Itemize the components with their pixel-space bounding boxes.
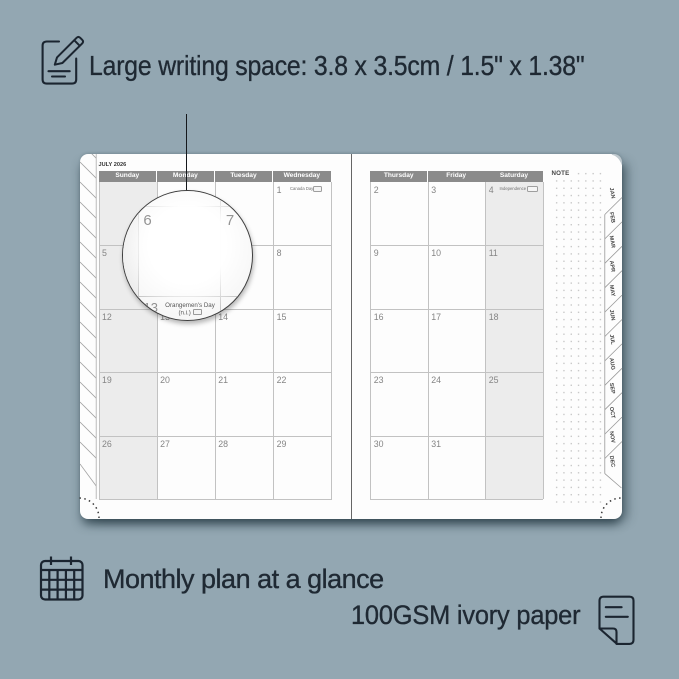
- svg-text:MAR: MAR: [608, 235, 616, 248]
- svg-text:JUN: JUN: [608, 309, 616, 321]
- svg-text:JUL: JUL: [608, 334, 616, 346]
- svg-text:DEC: DEC: [608, 455, 616, 468]
- svg-text:OCT: OCT: [608, 407, 616, 420]
- svg-text:NOV: NOV: [608, 431, 616, 444]
- svg-text:MAY: MAY: [608, 284, 616, 297]
- svg-text:JAN: JAN: [608, 187, 616, 199]
- svg-text:SEP: SEP: [608, 382, 616, 394]
- svg-text:APR: APR: [608, 260, 616, 273]
- svg-text:AUG: AUG: [608, 357, 616, 370]
- svg-text:FEB: FEB: [608, 212, 616, 224]
